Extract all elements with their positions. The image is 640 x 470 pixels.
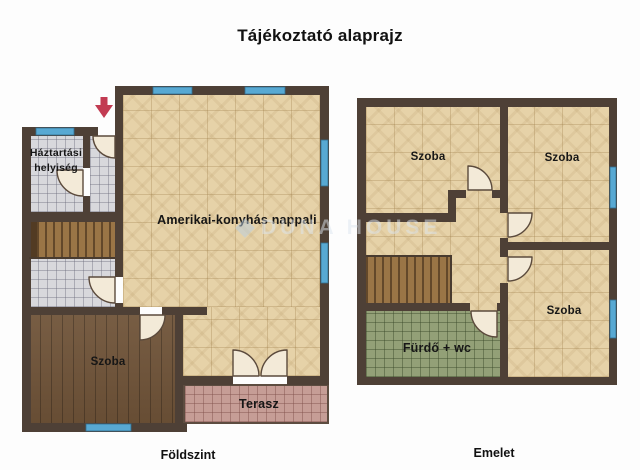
- wall: [456, 190, 466, 198]
- french-door-right-leaf: [261, 350, 287, 376]
- wall: [83, 196, 90, 212]
- door-arc-szoba-upper-1: [468, 166, 492, 190]
- door-arc-entrance: [93, 136, 115, 158]
- floor-plan-canvas: Tájékoztató alaprajz Háztartási helyiség…: [0, 0, 640, 470]
- upper-floor-walls: [357, 98, 617, 385]
- room-label-szoba-upper-2: Szoba: [545, 152, 580, 164]
- window-marker: [321, 243, 328, 283]
- entrance-arrow-icon: [95, 97, 113, 118]
- room-label-szoba-upper-3: Szoba: [547, 305, 582, 317]
- window-marker: [86, 424, 131, 431]
- wall: [357, 377, 617, 385]
- stairs-edge: [366, 255, 452, 257]
- wall: [22, 307, 140, 315]
- wall: [320, 86, 329, 385]
- wall: [492, 190, 500, 198]
- door-arc-szoba-upper-2: [508, 213, 532, 237]
- floor-label-upper: Emelet: [474, 446, 515, 460]
- wall: [357, 98, 366, 385]
- wall: [115, 86, 329, 95]
- window-marker: [153, 87, 192, 94]
- wall: [357, 98, 617, 107]
- wall: [609, 98, 617, 385]
- ground-floor-walls: [22, 86, 329, 432]
- wall: [175, 376, 233, 385]
- room-label-terasz: Terasz: [239, 397, 279, 411]
- room-label-nappali: Amerikai-konyhás nappali: [157, 213, 317, 227]
- wall: [497, 303, 508, 311]
- wall: [448, 190, 456, 222]
- window-marker: [610, 300, 616, 338]
- window-marker: [321, 140, 328, 186]
- wall: [508, 242, 609, 250]
- door-arc-bathroom: [471, 311, 497, 337]
- wall: [357, 303, 470, 311]
- french-door-left-leaf: [233, 350, 259, 376]
- room-label-bathroom: Fürdő + wc: [403, 341, 471, 355]
- wall: [500, 283, 508, 377]
- room-label-szoba-ground: Szoba: [91, 356, 126, 368]
- wall: [287, 376, 329, 385]
- door-arc-bedroom-ground: [140, 315, 165, 340]
- wall: [500, 238, 508, 257]
- wall: [500, 107, 508, 213]
- plan-overlay: [0, 0, 640, 470]
- wall: [22, 212, 123, 222]
- wall: [175, 315, 183, 423]
- window-marker: [36, 128, 74, 135]
- ground-floor-doors: [57, 136, 287, 376]
- window-marker: [610, 167, 616, 208]
- stairs-edge: [29, 257, 115, 259]
- room-label-szoba-upper-1: Szoba: [411, 151, 446, 163]
- door-arc-hallway: [89, 277, 115, 303]
- stairs-edge: [450, 257, 452, 303]
- wall: [115, 95, 123, 277]
- wall: [357, 213, 455, 222]
- door-arc-szoba-upper-3: [508, 257, 532, 281]
- window-marker: [245, 87, 285, 94]
- floor-label-ground: Földszint: [161, 448, 216, 462]
- room-label-haztartasi: Háztartási helyiség: [23, 146, 89, 176]
- wall: [162, 307, 207, 315]
